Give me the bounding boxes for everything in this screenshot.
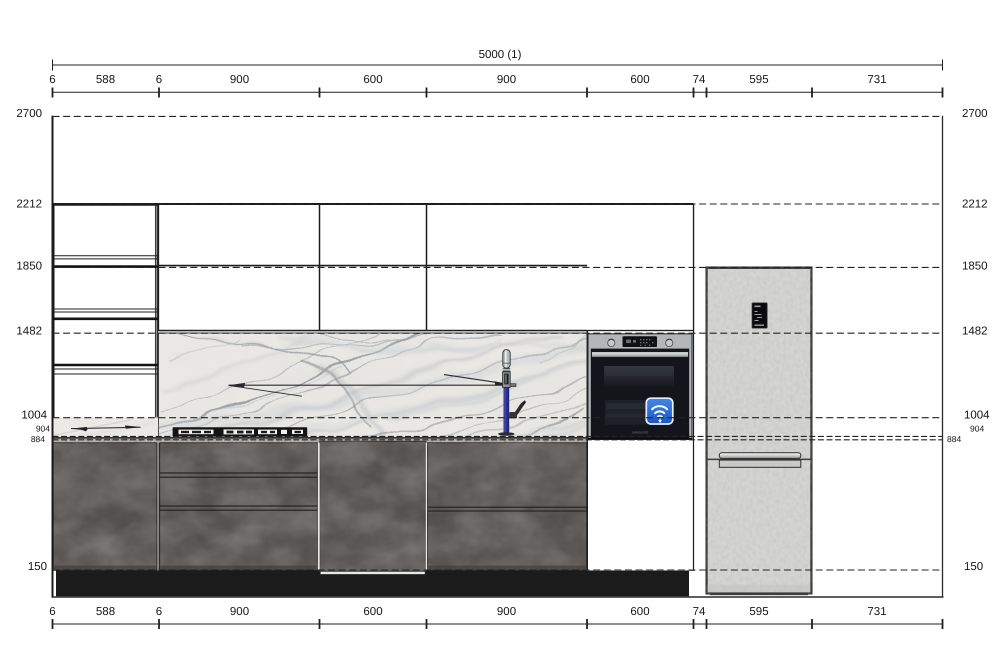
svg-text:1482: 1482 xyxy=(16,326,42,338)
svg-text:SAMSUNG: SAMSUNG xyxy=(632,431,649,435)
svg-text:1850: 1850 xyxy=(16,261,42,273)
svg-text:1482: 1482 xyxy=(962,326,988,338)
svg-text:2212: 2212 xyxy=(962,199,988,211)
svg-text:1850: 1850 xyxy=(962,261,988,273)
svg-text:5000 (1): 5000 (1) xyxy=(479,49,522,61)
svg-text:2212: 2212 xyxy=(16,199,42,211)
svg-text:6: 6 xyxy=(156,606,162,618)
svg-text:2700: 2700 xyxy=(962,108,988,120)
svg-text:731: 731 xyxy=(867,74,886,86)
svg-text:900: 900 xyxy=(497,74,516,86)
svg-text:595: 595 xyxy=(749,74,768,86)
svg-text:600: 600 xyxy=(630,606,649,618)
svg-text:600: 600 xyxy=(363,606,382,618)
svg-text:588: 588 xyxy=(96,74,115,86)
svg-text:900: 900 xyxy=(497,606,516,618)
svg-text:595: 595 xyxy=(749,606,768,618)
svg-text:900: 900 xyxy=(230,74,249,86)
svg-text:74: 74 xyxy=(693,606,706,618)
svg-text:1004: 1004 xyxy=(964,410,990,422)
svg-text:900: 900 xyxy=(230,606,249,618)
svg-text:600: 600 xyxy=(363,74,382,86)
svg-text:904: 904 xyxy=(970,424,984,434)
svg-text:150: 150 xyxy=(964,561,983,573)
svg-text:6: 6 xyxy=(49,606,55,618)
svg-text:884: 884 xyxy=(31,434,45,444)
svg-text:588: 588 xyxy=(96,606,115,618)
svg-text:74: 74 xyxy=(693,74,706,86)
svg-text:2700: 2700 xyxy=(16,108,42,120)
svg-text:150: 150 xyxy=(28,561,47,573)
svg-text:731: 731 xyxy=(867,606,886,618)
svg-text:6: 6 xyxy=(49,74,55,86)
svg-text:600: 600 xyxy=(630,74,649,86)
svg-text:884: 884 xyxy=(947,434,961,444)
svg-text:6: 6 xyxy=(156,74,162,86)
svg-text:1004: 1004 xyxy=(21,410,47,422)
svg-text:904: 904 xyxy=(36,424,50,434)
